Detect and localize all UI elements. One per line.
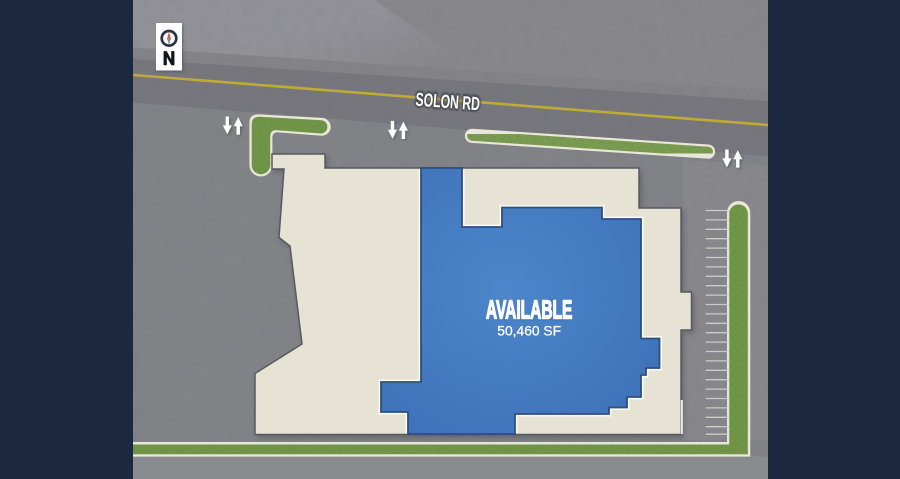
- svg-text:AVAILABLE: AVAILABLE: [486, 294, 573, 324]
- svg-text:50,460 SF: 50,460 SF: [497, 323, 561, 338]
